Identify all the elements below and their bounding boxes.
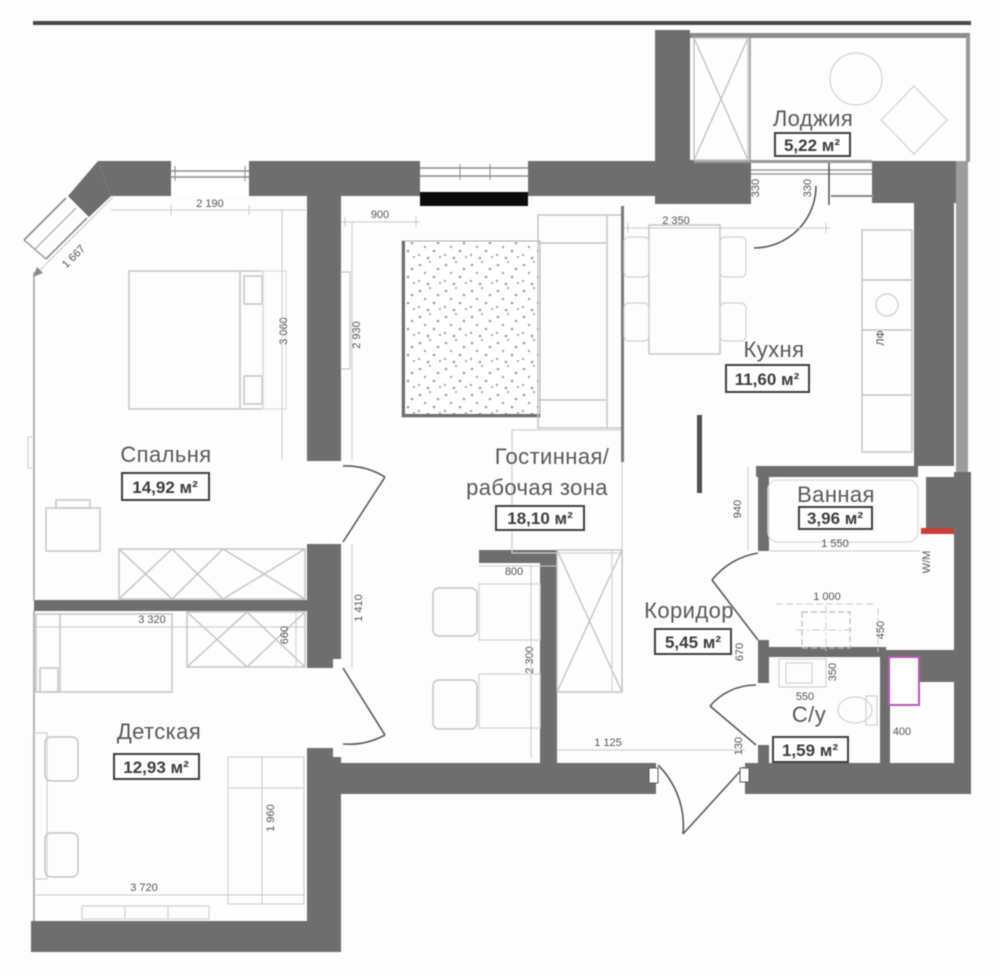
svg-text:130: 130 [733,737,745,755]
svg-text:2 930: 2 930 [351,321,363,349]
svg-text:Кухня: Кухня [744,337,805,362]
svg-text:2 190: 2 190 [196,198,224,210]
svg-text:W/M: W/M [921,551,933,574]
svg-text:450: 450 [875,621,887,639]
svg-text:1 000: 1 000 [813,591,841,603]
svg-text:5,22 м²: 5,22 м² [784,136,840,155]
svg-text:Спальня: Спальня [120,442,211,467]
svg-text:1,59 м²: 1,59 м² [782,741,838,760]
svg-text:330: 330 [802,179,814,197]
svg-text:5,45 м²: 5,45 м² [665,633,721,652]
svg-text:940: 940 [732,500,744,518]
svg-text:Гостинная/: Гостинная/ [495,444,610,469]
svg-text:3 320: 3 320 [138,614,166,626]
svg-text:2 300: 2 300 [524,646,536,674]
svg-text:1 550: 1 550 [821,538,849,550]
svg-text:3,96 м²: 3,96 м² [807,509,863,528]
svg-text:1 960: 1 960 [265,804,277,832]
svg-text:11,60 м²: 11,60 м² [735,370,800,389]
svg-text:3 060: 3 060 [278,317,290,345]
svg-text:рабочая зона: рабочая зона [466,475,608,500]
svg-text:900: 900 [371,209,389,221]
svg-text:330: 330 [750,179,762,197]
svg-text:3 720: 3 720 [130,882,158,894]
svg-text:12,93 м²: 12,93 м² [123,758,189,777]
svg-text:550: 550 [796,691,814,703]
svg-text:2 350: 2 350 [662,215,690,227]
svg-text:670: 670 [734,643,746,661]
svg-text:660: 660 [279,626,291,644]
svg-text:350: 350 [827,663,839,681]
svg-text:1 410: 1 410 [353,594,365,622]
svg-text:ЛФ: ЛФ [875,330,887,345]
svg-text:Лоджия: Лоджия [773,106,853,131]
svg-text:14,92 м²: 14,92 м² [132,478,198,497]
svg-text:400: 400 [893,726,911,738]
svg-text:18,10 м²: 18,10 м² [507,509,573,528]
svg-text:Коридор: Коридор [644,598,734,623]
svg-text:1 125: 1 125 [594,737,622,749]
svg-text:Детская: Детская [117,719,201,744]
svg-text:С/у: С/у [792,702,826,727]
svg-text:Ванная: Ванная [797,482,875,507]
svg-text:800: 800 [505,566,523,578]
